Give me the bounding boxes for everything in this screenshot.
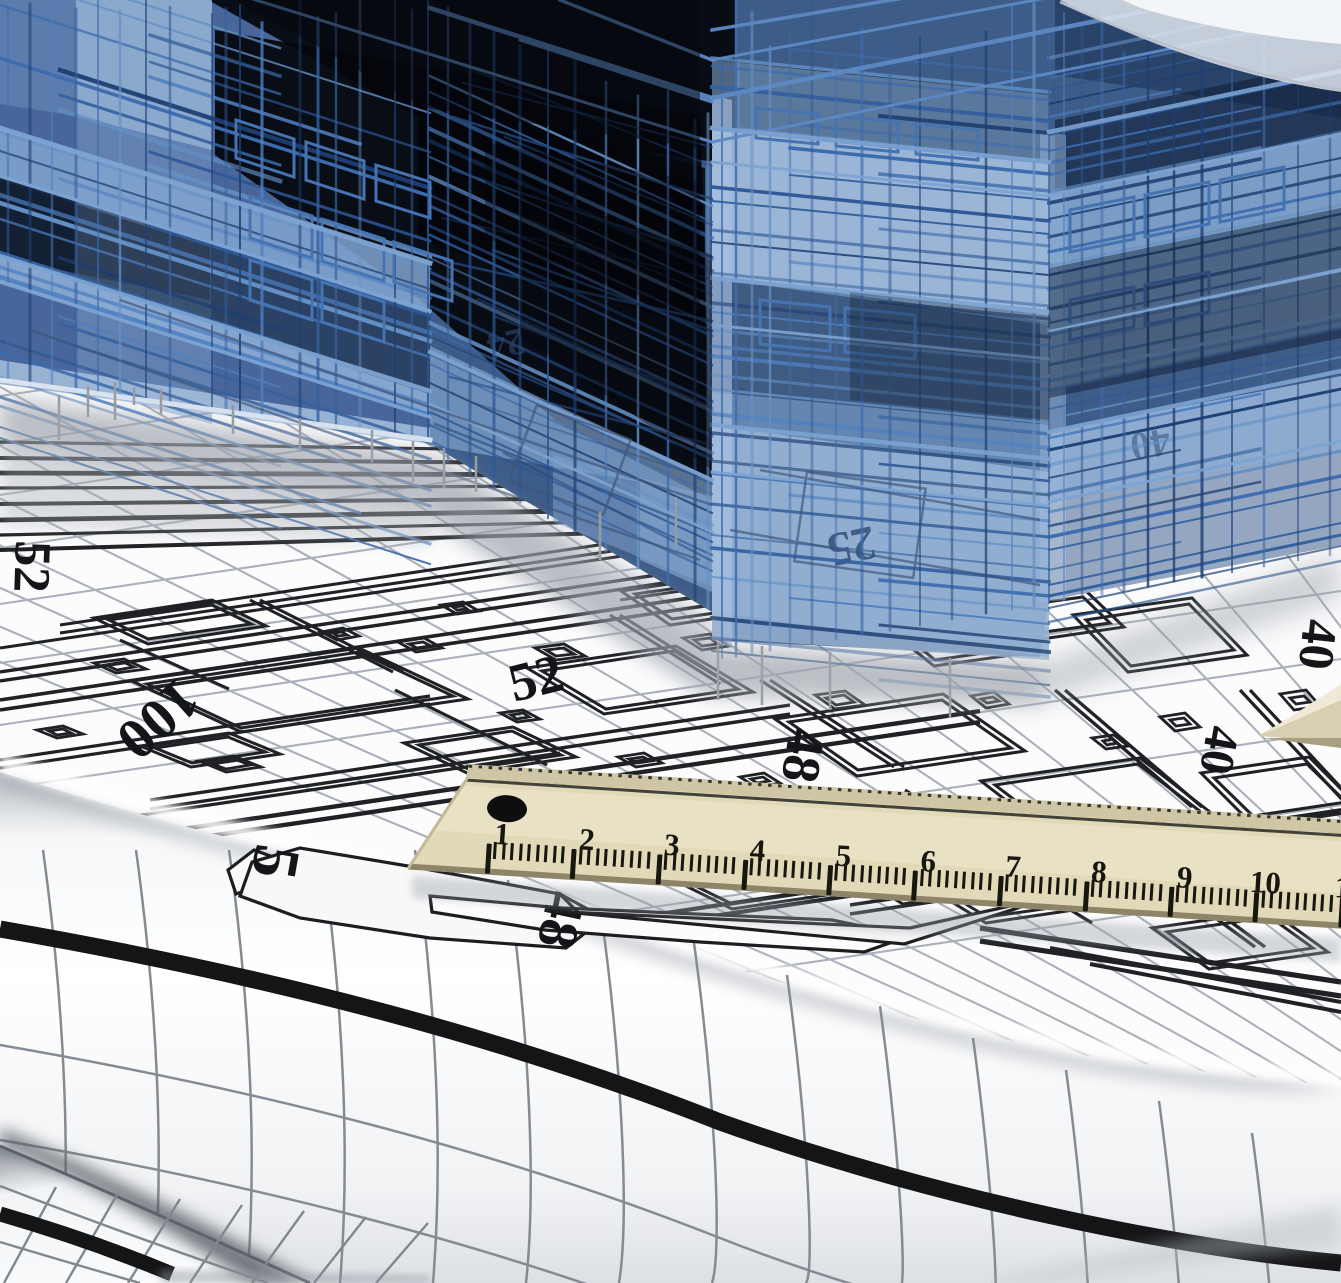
svg-text:10: 10 xyxy=(1249,864,1282,901)
svg-text:40: 40 xyxy=(1288,617,1341,673)
svg-text:40: 40 xyxy=(1189,722,1250,778)
svg-text:11: 11 xyxy=(1334,869,1341,906)
svg-text:48: 48 xyxy=(770,724,838,787)
svg-text:52: 52 xyxy=(2,540,61,594)
